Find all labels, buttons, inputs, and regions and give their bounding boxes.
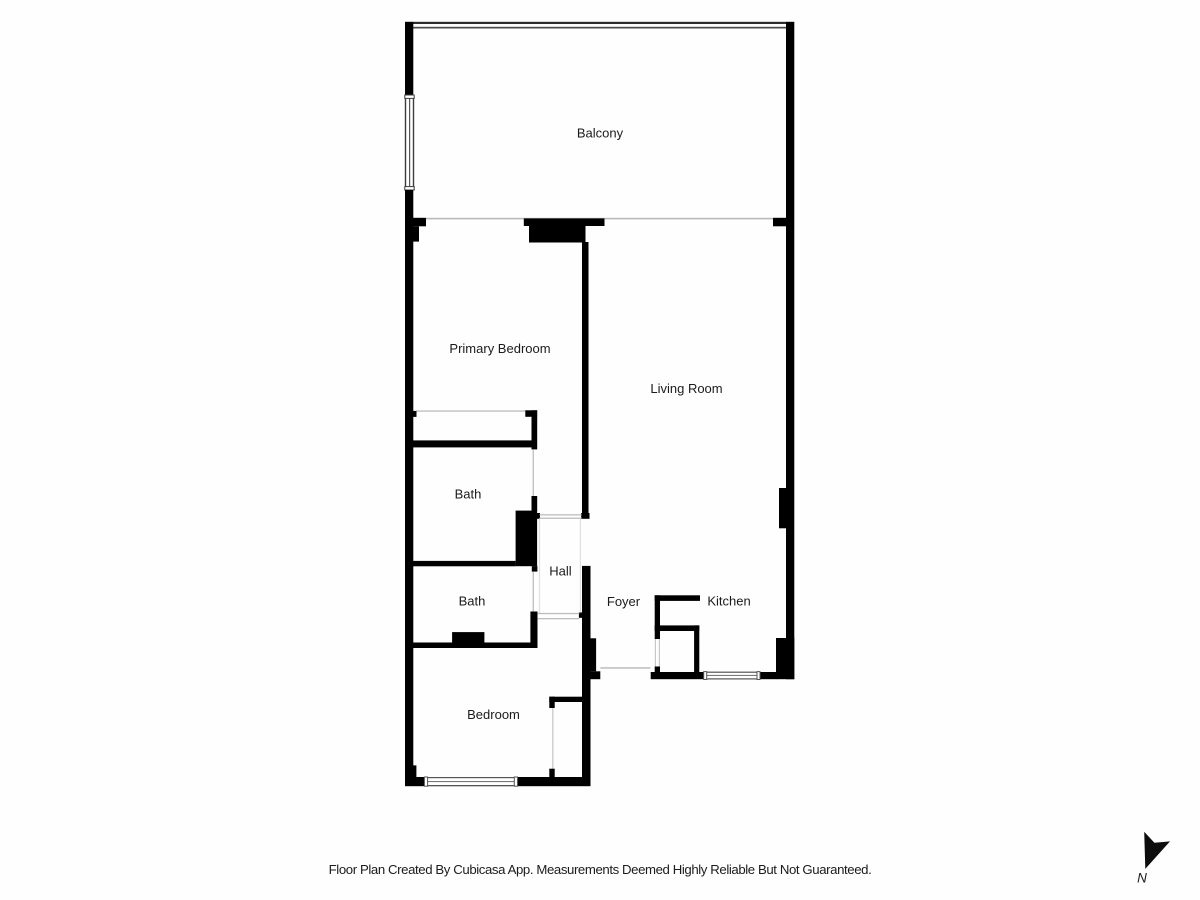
svg-text:N: N bbox=[1137, 871, 1147, 886]
svg-text:Bath: Bath bbox=[455, 487, 482, 502]
svg-text:Kitchen: Kitchen bbox=[707, 594, 750, 609]
svg-text:Foyer: Foyer bbox=[607, 594, 641, 609]
svg-text:Bath: Bath bbox=[459, 594, 486, 609]
svg-text:Floor Plan Created By Cubicasa: Floor Plan Created By Cubicasa App. Meas… bbox=[329, 862, 872, 877]
svg-text:Bedroom: Bedroom bbox=[467, 707, 520, 722]
svg-text:Balcony: Balcony bbox=[577, 126, 624, 141]
svg-text:Living Room: Living Room bbox=[650, 381, 722, 396]
svg-text:Primary Bedroom: Primary Bedroom bbox=[449, 341, 550, 356]
svg-text:Hall: Hall bbox=[549, 564, 572, 579]
